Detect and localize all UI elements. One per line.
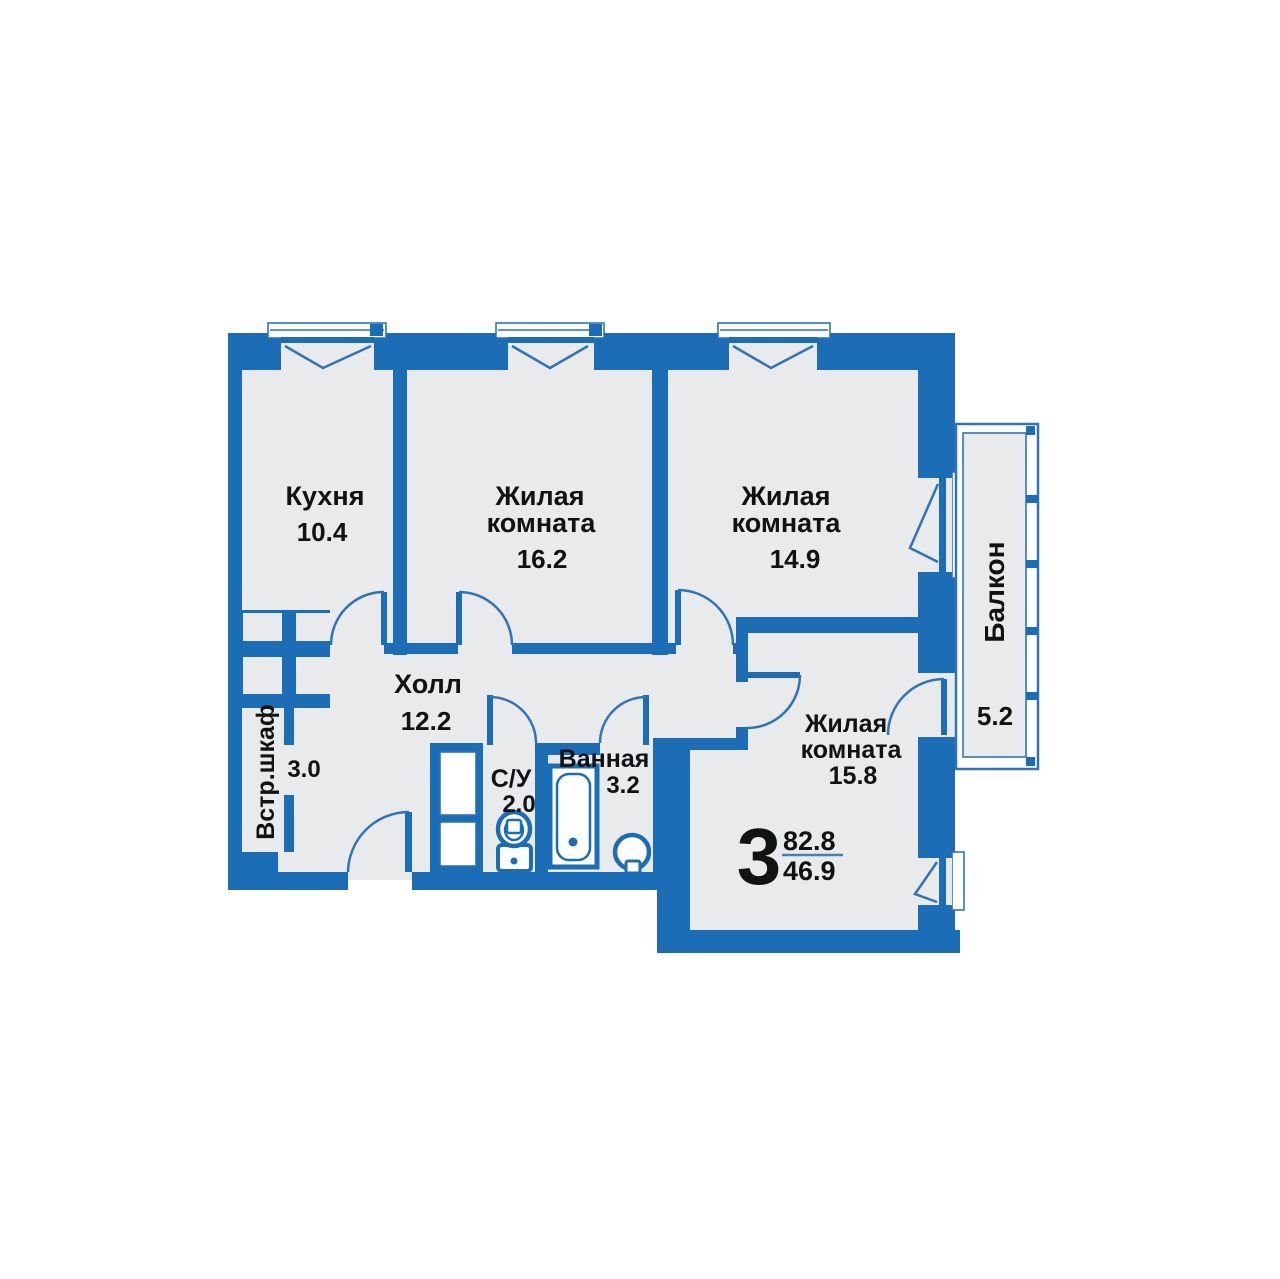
rooms-count: 3 — [737, 812, 782, 901]
room-name: комната — [732, 508, 842, 538]
room-area: 3.0 — [287, 756, 320, 783]
room-area: 14.9 — [770, 544, 821, 574]
window-kitchen-icon — [268, 323, 386, 371]
floor-plan-drawing: Кухня 10.4 Жилая комната 16.2 Жилая комн… — [0, 0, 1280, 1279]
window-living-1-icon — [496, 323, 604, 371]
room-name: Жилая — [741, 481, 831, 511]
room-area: 3.2 — [606, 772, 639, 799]
floor-plan-page: Кухня 10.4 Жилая комната 16.2 Жилая комн… — [0, 0, 1280, 1279]
bathtub-icon — [550, 766, 597, 867]
room-name: С/У — [491, 765, 532, 793]
ventilation-shaft — [440, 752, 476, 866]
room-name: Холл — [394, 669, 462, 699]
total-area: 82.8 — [783, 826, 836, 856]
room-name: Балкон — [979, 541, 1010, 642]
living-area: 46.9 — [783, 856, 836, 886]
room-name: комната — [487, 508, 597, 538]
room-name: Ванная — [559, 745, 650, 773]
room-name: Жилая — [495, 481, 585, 511]
toilet-icon — [498, 812, 531, 871]
window-living-2-icon — [718, 323, 830, 371]
window-living-3-side-icon — [915, 852, 964, 910]
room-label-balcony: Балкон 5.2 — [977, 541, 1013, 731]
room-area: 16.2 — [517, 544, 568, 574]
room-area: 15.8 — [829, 762, 878, 790]
room-name: Жилая — [804, 710, 887, 738]
room-name: Встр.шкаф — [252, 704, 280, 840]
room-area: 2.0 — [502, 791, 535, 818]
room-area: 10.4 — [297, 517, 348, 547]
room-area: 5.2 — [977, 701, 1013, 731]
room-area: 12.2 — [401, 706, 452, 736]
room-name: Кухня — [286, 481, 365, 511]
room-name: комната — [801, 736, 903, 764]
